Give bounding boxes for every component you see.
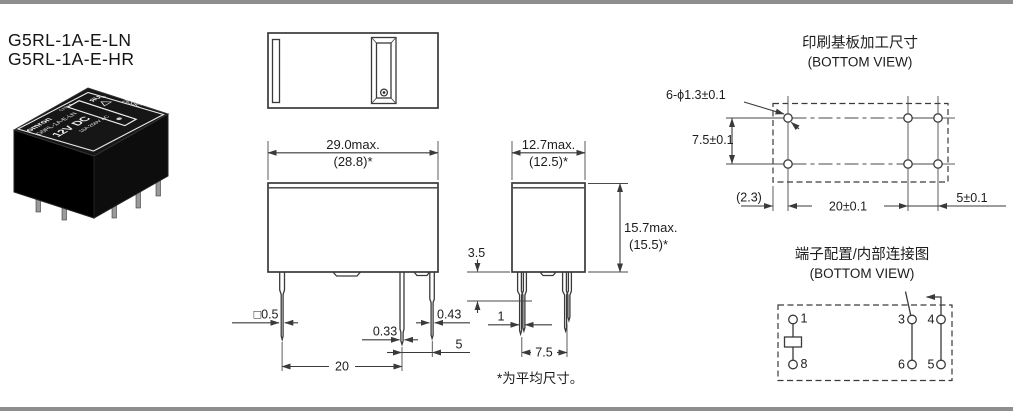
dim-width-avg: (28.8)* bbox=[333, 154, 372, 169]
dim-pin-thickness: 1 bbox=[498, 310, 505, 324]
footnote: *为平均尺寸。 bbox=[497, 371, 583, 386]
dim-hole-diameter: 6-ϕ1.3±0.1 bbox=[666, 88, 726, 102]
dim-pitch-main: 20 bbox=[335, 360, 349, 374]
terminal-8 bbox=[789, 360, 798, 369]
dim-pin-square: □0.5 bbox=[254, 308, 279, 322]
dim-width-max: 29.0max. bbox=[326, 137, 379, 152]
dim-height-max: 15.7max. bbox=[624, 220, 677, 235]
terminal-4 bbox=[937, 315, 946, 324]
dim-pin-pitch: 7.5 bbox=[535, 346, 552, 360]
dim-pin-right: 0.43 bbox=[437, 308, 461, 322]
dim-pitch-right: 5 bbox=[456, 338, 463, 352]
dim-standoff: 3.5 bbox=[468, 246, 485, 260]
dim-depth-avg: (12.5)* bbox=[529, 154, 568, 169]
dimension-drawings: omron CHINA G5RL-1A-E-LN 12V DC 16A 250V… bbox=[0, 0, 1013, 415]
terminal-8-label: 8 bbox=[801, 357, 808, 371]
terminal-3-label: 3 bbox=[898, 313, 905, 327]
terminal-1-label: 1 bbox=[801, 312, 808, 326]
dim-row-pitch: 7.5±0.1 bbox=[692, 133, 734, 147]
dim-col-pitch: 20±0.1 bbox=[829, 200, 867, 214]
hole bbox=[784, 114, 792, 122]
hole bbox=[904, 160, 912, 168]
datasheet-dimensions-section: G5RL-1A-E-LN G5RL-1A-E-HR omron CHI bbox=[0, 0, 1013, 415]
terminal-4-label: 4 bbox=[928, 313, 935, 327]
hole bbox=[934, 160, 942, 168]
dim-height-avg: (15.5)* bbox=[629, 237, 668, 252]
side-view-drawing: 12.7max. (12.5)* 15.7max. (15.5)* 3.5 1 … bbox=[467, 137, 677, 386]
terminal-5 bbox=[937, 360, 946, 369]
coil-symbol bbox=[785, 337, 802, 347]
dim-edge-offset: (2.3) bbox=[736, 191, 762, 205]
pcb-subtitle: (BOTTOM VIEW) bbox=[808, 55, 913, 70]
hole bbox=[784, 160, 792, 168]
relay-outline-dashed bbox=[773, 104, 948, 183]
hole bbox=[934, 114, 942, 122]
top-view-drawing bbox=[268, 33, 438, 108]
terminal-5-label: 5 bbox=[928, 358, 935, 372]
contact-pin-mid bbox=[400, 272, 404, 345]
relay-photo: omron CHINA G5RL-1A-E-LN 12V DC 16A 250V… bbox=[14, 88, 168, 220]
terminal-6 bbox=[908, 360, 917, 369]
dim-col-pitch2: 5±0.1 bbox=[956, 191, 987, 205]
hole bbox=[904, 114, 912, 122]
terminal-title: 端子配置/内部连接图 bbox=[795, 246, 930, 263]
terminal-1 bbox=[789, 315, 798, 324]
terminal-3 bbox=[908, 315, 917, 324]
terminal-connection-diagram: 端子配置/内部连接图 (BOTTOM VIEW) 1 8 3 4 6 5 bbox=[778, 246, 952, 381]
pcb-drilling-drawing: 印刷基板加工尺寸 (BOTTOM VIEW) bbox=[666, 34, 1006, 214]
pcb-title: 印刷基板加工尺寸 bbox=[802, 34, 918, 52]
terminal-6-label: 6 bbox=[898, 358, 905, 372]
coil-pin bbox=[280, 272, 285, 340]
terminal-subtitle: (BOTTOM VIEW) bbox=[810, 266, 915, 281]
dim-depth-max: 12.7max. bbox=[522, 137, 575, 152]
contact-blade bbox=[906, 292, 911, 316]
front-view-drawing: 29.0max. (28.8)* □0.5 0.33 0.43 5 20 bbox=[232, 137, 470, 374]
dim-pin-mid: 0.33 bbox=[373, 325, 397, 339]
contact-pin-right bbox=[430, 272, 435, 339]
